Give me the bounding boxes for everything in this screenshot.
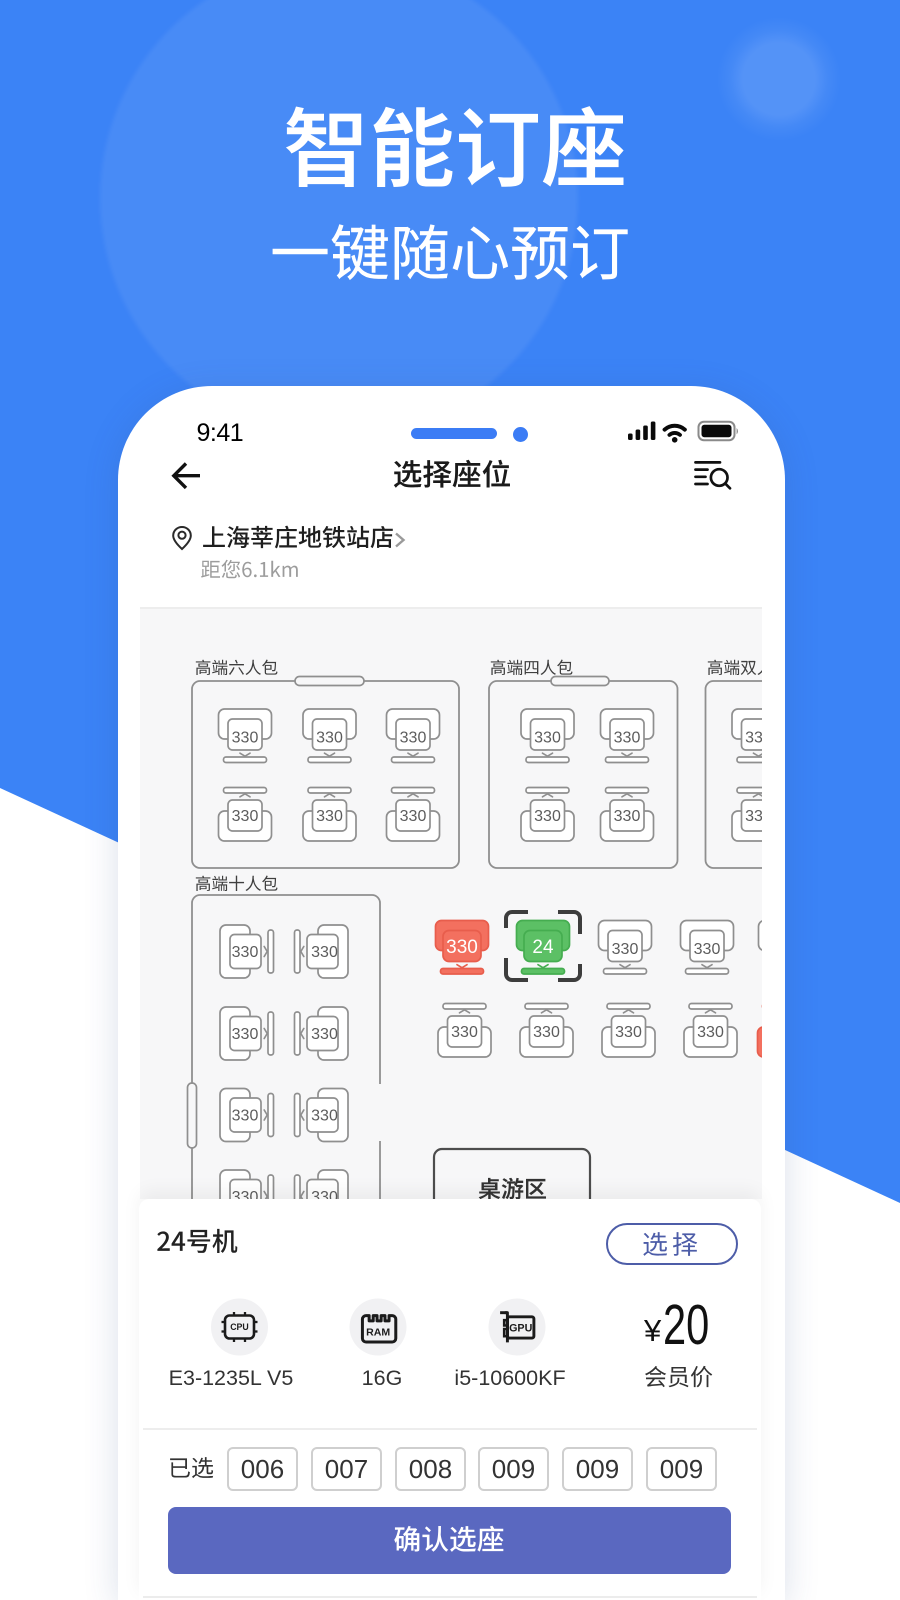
svg-text:330: 330	[534, 729, 561, 746]
svg-text:330: 330	[311, 1189, 338, 1199]
svg-text:330: 330	[451, 1024, 478, 1041]
svg-text:330: 330	[311, 944, 338, 961]
svg-text:330: 330	[615, 1024, 642, 1041]
svg-text:330: 330	[614, 808, 641, 825]
svg-text:330: 330	[400, 808, 427, 825]
svg-text:330: 330	[316, 729, 343, 746]
svg-text:330: 330	[745, 729, 762, 746]
svg-text:GPU: GPU	[509, 1322, 532, 1334]
svg-text:330: 330	[446, 937, 478, 958]
svg-text:330: 330	[612, 941, 639, 958]
svg-text:24: 24	[532, 937, 554, 958]
svg-text:330: 330	[232, 1189, 259, 1199]
svg-text:RAM: RAM	[366, 1327, 390, 1339]
svg-text:330: 330	[232, 944, 259, 961]
svg-text:330: 330	[534, 808, 561, 825]
svg-text:330: 330	[316, 808, 343, 825]
svg-text:330: 330	[400, 729, 427, 746]
svg-text:CPU: CPU	[230, 1322, 249, 1332]
svg-text:330: 330	[694, 941, 721, 958]
svg-text:330: 330	[232, 808, 259, 825]
svg-text:330: 330	[311, 1108, 338, 1125]
svg-text:330: 330	[232, 1108, 259, 1125]
svg-text:330: 330	[311, 1026, 338, 1043]
svg-text:330: 330	[232, 729, 259, 746]
svg-text:330: 330	[232, 1026, 259, 1043]
svg-text:330: 330	[745, 808, 762, 825]
svg-text:330: 330	[533, 1024, 560, 1041]
svg-text:330: 330	[697, 1024, 724, 1041]
svg-text:330: 330	[614, 729, 641, 746]
